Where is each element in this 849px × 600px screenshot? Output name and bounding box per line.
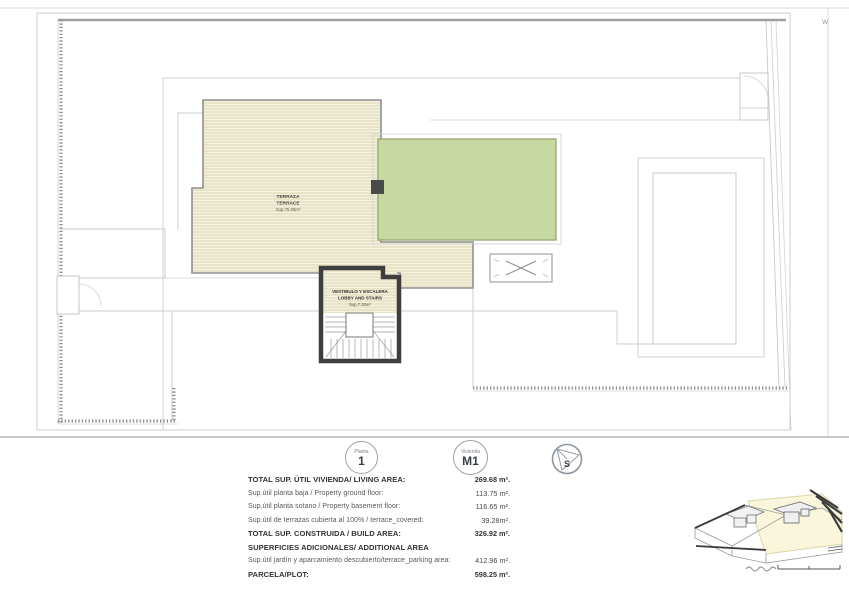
table-row: PARCELA/PLOT: 598.25 m². [248,568,510,582]
scale-bar [746,565,840,571]
row-label: Sup.útil jardín y aparcamiento descubier… [248,557,450,564]
render-ticks [828,546,842,551]
watermark-letter: W [822,19,829,26]
terrace-label-area: Sup.75.80m² [276,207,301,212]
row-value: 412.96 m². [475,556,510,565]
table-row: Sup.útil jardín y aparcamiento descubier… [248,554,510,568]
lobby-label-es: VESTIBULO Y ESCALERA [332,289,389,294]
entry-door [57,276,79,314]
terrace-label-es: TERRAZA [277,194,300,200]
table-row: SUPERFICIES ADICIONALES/ ADDITIONAL AREA [248,541,510,555]
table-row: TOTAL SUP. CONSTRUIDA / BUILD AREA: 326.… [248,527,510,541]
site-plan-drawing: TERRAZA TERRACE Sup.75.80m² [0,0,849,448]
pillar [371,180,384,194]
unit-badge: Vivienda M1 [453,440,488,475]
neighbour-plot-outer [638,158,764,357]
row-label: PARCELA/PLOT: [248,570,309,579]
row-label: TOTAL SUP. CONSTRUIDA / BUILD AREA: [248,529,401,538]
stair-void [346,313,373,337]
lobby-stairs-room: VESTIBULO Y ESCALERA LOBBY AND STAIRS Su… [321,268,399,361]
lobby-label-en: LOBBY AND STAIRS [338,296,382,301]
lobby-label-area: Sup.7.30m² [349,302,371,307]
row-value: 326.92 m². [475,529,510,538]
row-label: SUPERFICIES ADICIONALES/ ADDITIONAL AREA [248,543,429,552]
row-label: TOTAL SUP. ÚTIL VIVIENDA/ LIVING AREA: [248,475,405,484]
door-swing-arc [79,284,101,306]
left-annex-rooms [60,229,172,421]
row-value: 269.68 m². [475,475,510,484]
row-label: Sup.útil de terrazas cubierta al 100% / … [248,517,424,524]
row-value: 113.75 m². [476,489,510,498]
table-row: Sup.útil planta sotano / Property baseme… [248,500,510,514]
terrace-label-en: TERRACE [276,201,300,207]
unit-badge-value: M1 [462,455,479,467]
floor-badge-value: 1 [358,455,365,467]
row-value: 116.65 m². [476,502,510,511]
row-value: 598.25 m². [475,570,510,579]
entrance-gate [740,73,768,120]
areas-table: TOTAL SUP. ÚTIL VIVIENDA/ LIVING AREA: 2… [248,473,510,581]
neighbour-plot-inner [653,173,736,344]
row-label: Sup.útil planta baja / Property ground f… [248,490,383,497]
pool [378,139,556,240]
row-value: 39.28m². [481,516,510,525]
floor-badge: Planta 1 [345,441,378,474]
skylight [490,254,552,282]
axonometric-thumbnail [690,468,848,600]
floor-plan-sheet: TERRAZA TERRACE Sup.75.80m² [0,0,849,600]
table-row: Sup.útil planta baja / Property ground f… [248,487,510,501]
table-row: Sup.útil de terrazas cubierta al 100% / … [248,514,510,528]
table-row: TOTAL SUP. ÚTIL VIVIENDA/ LIVING AREA: 2… [248,473,510,487]
row-label: Sup.útil planta sotano / Property baseme… [248,503,400,510]
compass-letter: S [564,459,570,469]
compass: S [550,443,584,482]
